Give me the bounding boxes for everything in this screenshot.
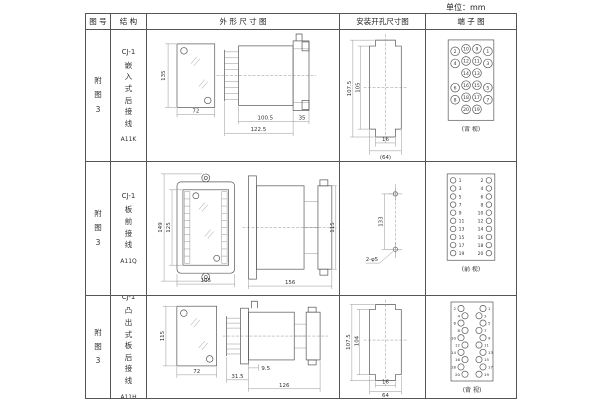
front-view: 115 72 (160, 306, 217, 378)
side-view: 156 115 (243, 176, 337, 289)
terminal-drawing-a11q: 1357911131517192468101214161820 (前 视) (426, 162, 516, 295)
terminal-pin (486, 226, 492, 232)
install-cell-row3: 107.5 104 16 64 (340, 296, 426, 398)
terminal-pin (480, 305, 486, 311)
terminal-view-caption: (前 视) (462, 265, 480, 273)
terminal-pin-number: 18 (463, 95, 469, 101)
terminal-pin (458, 364, 464, 370)
terminal-pin (486, 234, 492, 240)
terminal-cell-row3: 2468101214161820135791113151719 (背 视) (426, 296, 516, 398)
unit-label: 单位：mm (446, 2, 486, 13)
terminal-pin (450, 242, 456, 248)
fig-no-label: 附图3 (94, 207, 103, 250)
terminal-pin (450, 250, 456, 256)
terminal-pin-number: 6 (454, 85, 457, 91)
terminal-pin-number: 7 (484, 328, 487, 333)
outline-drawing-a11q: 149 125 105 156 (147, 162, 339, 295)
dim-span: 64 (382, 393, 389, 398)
structure-cell-row2: CJ-1 板前接线 A11Q (111, 162, 147, 296)
dim-width: 72 (192, 108, 199, 114)
terminal-pin-number: 15 (484, 357, 489, 362)
terminal-pin-number: 2 (454, 49, 457, 55)
terminal-pin (450, 210, 456, 216)
structure-name: 板前接线 (124, 204, 133, 251)
model-label: CJ-1 (122, 48, 136, 56)
fig-no-cell-row2: 附图3 (86, 162, 111, 296)
terminal-pin (450, 218, 456, 224)
side-view: 9.5 31.5 126 (223, 301, 328, 392)
dim-hole-spec: 2-φ5 (366, 257, 378, 263)
terminal-pin-number: 12 (463, 59, 469, 65)
terminal-pin-number: 11 (474, 59, 480, 65)
terminal-pin (476, 313, 482, 319)
dim-hole-pitch: 133 (379, 216, 385, 227)
dim-height: 149 (158, 222, 164, 233)
outline-cell-row3: 115 72 9 (147, 296, 340, 398)
terminal-pin-number: 9 (476, 47, 479, 53)
terminal-cell-row1: 2109141211314136161558181772019 (背 视) (426, 30, 516, 162)
terminal-pin-number: 2 (481, 178, 484, 184)
fig-no-cell-row3: 附图3 (86, 296, 111, 398)
terminal-pin-number: 14 (451, 350, 456, 355)
terminal-pin-number: 13 (488, 350, 493, 355)
terminal-pin-number: 2 (454, 306, 457, 311)
terminal-pin-number: 17 (488, 365, 493, 370)
terminal-pin-number: 14 (478, 227, 484, 233)
dim-slot: 16 (382, 380, 389, 386)
terminal-pin-number: 8 (454, 97, 457, 103)
outline-cell-row1: 135 72 100.5 (147, 30, 340, 162)
dim-height: 135 (161, 70, 167, 80)
datasheet-page: 单位：mm 图 号 结 构 外 形 尺 寸 图 安装开孔尺寸图 端 子 图 附图… (0, 0, 600, 400)
terminal-pin-number: 11 (459, 219, 465, 225)
terminal-pin-number: 10 (463, 47, 469, 53)
terminal-pin-grid: 1357911131517192468101214161820 (450, 178, 491, 257)
terminal-pin-number: 15 (474, 83, 480, 89)
terminal-pin-number: 19 (474, 107, 480, 113)
dim-side-height: 115 (330, 222, 336, 232)
dim-inner-height: 125 (166, 222, 172, 232)
terminal-cell-row2: 1357911131517192468101214161820 (前 视) (426, 162, 516, 296)
terminal-pin (462, 371, 468, 377)
dim-flange: 35 (299, 115, 306, 121)
dim-body: 100.5 (258, 115, 274, 121)
terminal-pin (486, 186, 492, 192)
header-outline: 外 形 尺 寸 图 (147, 14, 340, 30)
terminal-pin-number: 11 (484, 343, 489, 348)
terminal-pin-number: 5 (488, 321, 491, 326)
terminal-pin (458, 305, 464, 311)
terminal-drawing-a11h: 2468101214161820135791113151719 (背 视) (426, 296, 516, 398)
terminal-pin (486, 218, 492, 224)
dim-length: 126 (279, 383, 290, 389)
install-drawing-a11h: 107.5 104 16 64 (340, 296, 425, 398)
header-install: 安装开孔尺寸图 (340, 14, 426, 30)
terminal-pin (480, 364, 486, 370)
terminal-pin-number: 7 (486, 97, 489, 103)
terminal-pin (486, 178, 492, 184)
terminal-pin-number: 6 (454, 321, 457, 326)
terminal-pin-number: 19 (459, 251, 465, 257)
terminal-pin (458, 349, 464, 355)
dim-height: 115 (160, 331, 166, 341)
outline-drawing-a11k: 135 72 100.5 (147, 30, 339, 161)
terminal-pin-number: 16 (478, 235, 484, 241)
terminal-pin-number: 10 (451, 335, 456, 340)
fig-no-cell-row1: 附图3 (86, 30, 111, 162)
structure-name: 嵌入式后接线 (124, 60, 133, 130)
terminal-pin (462, 342, 468, 348)
dim-outer: 107.5 (346, 334, 352, 350)
terminal-pin (486, 210, 492, 216)
terminal-pin (458, 335, 464, 341)
terminal-pin (486, 194, 492, 200)
terminal-pin-number: 19 (484, 372, 489, 377)
terminal-pin-number: 1 (488, 306, 491, 311)
terminal-pin (480, 335, 486, 341)
dim-total: 122.5 (251, 127, 267, 133)
model-code: A11K (121, 136, 137, 143)
terminal-pin-number: 13 (459, 227, 465, 233)
terminal-pin-number: 17 (474, 95, 480, 101)
terminal-pin-number: 14 (463, 71, 469, 77)
terminal-pin-number: 3 (484, 313, 487, 318)
dim-offset: 9.5 (261, 366, 270, 372)
install-drawing-a11q: 133 2-φ5 (340, 162, 425, 295)
dim-width: 72 (193, 369, 200, 375)
terminal-pin (486, 202, 492, 208)
terminal-pin-number: 12 (455, 343, 460, 348)
terminal-pin (476, 357, 482, 363)
fig-no-label: 附图3 (94, 74, 103, 117)
terminal-pin-number: 9 (459, 211, 462, 217)
structure-cell-row1: CJ-1 嵌入式后接线 A11K (111, 30, 147, 162)
terminal-pin-number: 16 (463, 83, 469, 89)
terminal-pin (486, 250, 492, 256)
install-cell-row1: 107.5 105 16 (64) (340, 30, 426, 162)
terminal-pin-number: 5 (459, 194, 462, 200)
terminal-pin (476, 371, 482, 377)
terminal-pin-number: 20 (478, 251, 484, 257)
terminal-pin-number: 6 (481, 194, 484, 200)
dim-width: 105 (201, 278, 211, 284)
dim-inner: 105 (355, 82, 361, 92)
terminal-pin (450, 178, 456, 184)
terminal-pin-number: 12 (478, 219, 484, 225)
terminal-pin (462, 313, 468, 319)
terminal-pin-number: 4 (481, 186, 484, 192)
terminal-drawing-a11k: 2109141211314136161558181772019 (背 视) (426, 30, 516, 161)
terminal-pin-number: 18 (451, 365, 456, 370)
terminal-pin-number: 16 (455, 357, 460, 362)
dim-slot: 16 (382, 137, 389, 143)
terminal-view-caption: (背 视) (462, 125, 480, 133)
fig-no-label: 附图3 (94, 326, 103, 369)
terminal-pin-grid: 2468101214161820135791113151719 (451, 305, 493, 377)
terminal-pin-number: 8 (458, 328, 461, 333)
dim-inner: 104 (354, 335, 360, 346)
terminal-pin (480, 349, 486, 355)
terminal-pin-number: 10 (478, 211, 484, 217)
dim-outer: 107.5 (347, 81, 353, 97)
terminal-pin-number: 3 (486, 61, 489, 67)
terminal-pin-number: 4 (454, 61, 457, 67)
terminal-pin-number: 20 (463, 107, 469, 113)
model-label: CJ-1 (122, 296, 136, 301)
side-view: 100.5 35 122.5 (217, 34, 316, 136)
terminal-pin-number: 1 (486, 49, 489, 55)
terminal-pin-number: 7 (459, 202, 462, 208)
dim-length: 156 (285, 280, 296, 286)
terminal-pin-number: 5 (486, 85, 489, 91)
outline-cell-row2: 149 125 105 156 (147, 162, 340, 296)
structure-name: 凸出式板后接线 (124, 305, 133, 386)
header-fig-no: 图 号 (86, 14, 111, 30)
front-view: 135 72 (161, 44, 215, 117)
terminal-pin (480, 320, 486, 326)
dim-pins: 31.5 (231, 374, 243, 380)
terminal-pin-number: 17 (459, 243, 465, 249)
terminal-pin-number: 1 (459, 178, 462, 184)
terminal-pin (476, 342, 482, 348)
terminal-view-caption: (背 视) (463, 386, 482, 394)
model-code: A11Q (120, 258, 136, 265)
install-drawing-a11k: 107.5 105 16 (64) (340, 30, 425, 161)
terminal-pin (462, 327, 468, 333)
install-cell-row2: 133 2-φ5 (340, 162, 426, 296)
terminal-pin (450, 194, 456, 200)
terminal-pin (458, 320, 464, 326)
header-structure: 结 构 (111, 14, 147, 30)
terminal-pin-number: 13 (474, 71, 480, 77)
outline-drawing-a11h: 115 72 9 (147, 296, 339, 398)
terminal-pin-number: 9 (488, 335, 491, 340)
terminal-pin (450, 226, 456, 232)
terminal-pin-number: 8 (481, 202, 484, 208)
front-view: 149 125 105 (158, 174, 234, 287)
terminal-pin-number: 4 (458, 313, 461, 318)
terminal-pin (486, 242, 492, 248)
header-terminal: 端 子 图 (426, 14, 516, 30)
terminal-pin (450, 186, 456, 192)
terminal-pin (450, 234, 456, 240)
terminal-pin (462, 357, 468, 363)
terminal-pin-number: 18 (478, 243, 484, 249)
dim-span: (64) (380, 155, 391, 161)
terminal-pin-grid: 2109141211314136161558181772019 (451, 44, 492, 113)
terminal-pin-number: 3 (459, 186, 462, 192)
terminal-pin-number: 15 (459, 235, 465, 241)
terminal-pin (450, 202, 456, 208)
model-label: CJ-1 (122, 192, 136, 200)
structure-cell-row3: CJ-1 凸出式板后接线 A11H (111, 296, 147, 398)
model-code: A11H (120, 394, 136, 398)
terminal-pin (476, 327, 482, 333)
terminal-pin-number: 20 (455, 372, 460, 377)
spec-table: 图 号 结 构 外 形 尺 寸 图 安装开孔尺寸图 端 子 图 附图3 CJ-1… (85, 13, 517, 399)
